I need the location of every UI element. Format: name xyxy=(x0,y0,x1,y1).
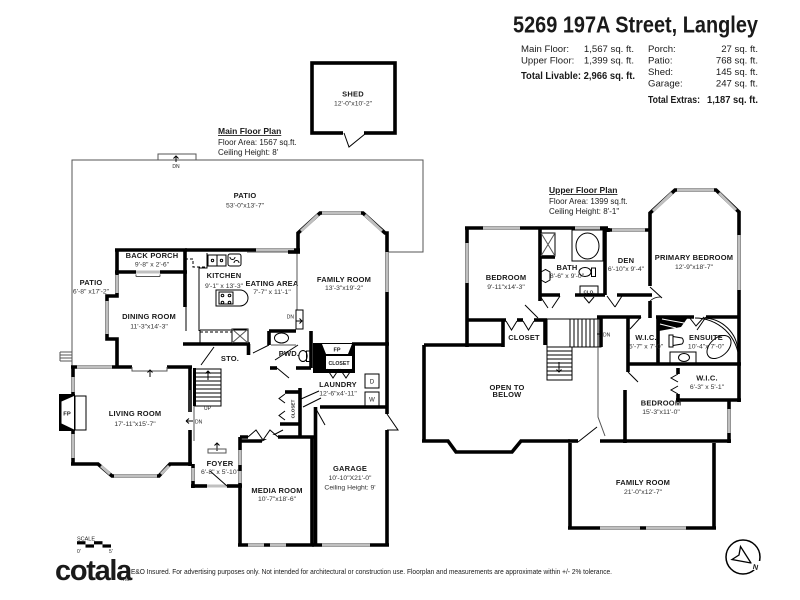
svg-text:DN: DN xyxy=(603,333,611,339)
svg-text:Total Livable: 2,966 sq. ft.: Total Livable: 2,966 sq. ft. xyxy=(521,71,635,82)
svg-text:Total Extras:: Total Extras: xyxy=(648,95,700,106)
svg-text:DN: DN xyxy=(195,420,203,426)
svg-text:DN: DN xyxy=(172,164,180,170)
svg-text:10'-10"X21'-0": 10'-10"X21'-0" xyxy=(329,475,373,482)
svg-text:Upper Floor:: Upper Floor: xyxy=(521,56,574,67)
svg-text:CLOSET: CLOSET xyxy=(328,361,350,367)
svg-text:7'-7" x 11'-1": 7'-7" x 11'-1" xyxy=(253,289,291,296)
svg-text:145 sq. ft.: 145 sq. ft. xyxy=(716,67,758,78)
svg-text:BACK PORCH: BACK PORCH xyxy=(126,251,179,260)
svg-text:PATIO: PATIO xyxy=(80,278,103,287)
svg-text:Garage:: Garage: xyxy=(648,79,683,90)
svg-text:13'-3"x19'-2": 13'-3"x19'-2" xyxy=(325,285,364,292)
svg-text:FP: FP xyxy=(63,412,71,418)
svg-text:9'-1" x 13'-3": 9'-1" x 13'-3" xyxy=(205,283,244,290)
svg-text:27 sq. ft.: 27 sq. ft. xyxy=(721,44,758,55)
svg-text:5269 197A Street, Langley: 5269 197A Street, Langley xyxy=(513,12,758,38)
svg-text:Ceiling Height: 8': Ceiling Height: 8' xyxy=(218,148,279,157)
svg-text:Main Floor Plan: Main Floor Plan xyxy=(218,126,281,136)
svg-text:DEN: DEN xyxy=(618,256,634,265)
svg-text:5'-7" x 7'-0": 5'-7" x 7'-0" xyxy=(629,344,664,351)
svg-text:PATIO: PATIO xyxy=(234,191,257,200)
svg-text:Upper Floor Plan: Upper Floor Plan xyxy=(549,185,617,195)
svg-text:6'-3" x 5'-1": 6'-3" x 5'-1" xyxy=(690,384,725,391)
svg-text:MEDIA ROOM: MEDIA ROOM xyxy=(251,486,302,495)
svg-text:CLOSET: CLOSET xyxy=(291,399,296,418)
svg-text:15'-3"x11'-0": 15'-3"x11'-0" xyxy=(642,409,680,416)
svg-text:6'-8" x 5'-10": 6'-8" x 5'-10" xyxy=(201,469,240,476)
svg-text:Porch:: Porch: xyxy=(648,44,676,55)
svg-text:BEDROOM: BEDROOM xyxy=(486,273,527,282)
svg-text:SHED: SHED xyxy=(342,90,364,99)
svg-text:LIVING ROOM: LIVING ROOM xyxy=(109,409,162,418)
svg-text:BELOW: BELOW xyxy=(493,390,523,399)
svg-text:FAMILY ROOM: FAMILY ROOM xyxy=(317,275,371,284)
svg-text:12'-9"x18'-7": 12'-9"x18'-7" xyxy=(675,264,714,271)
svg-text:TM: TM xyxy=(122,577,129,583)
svg-text:Shed:: Shed: xyxy=(648,67,673,78)
svg-text:KITCHEN: KITCHEN xyxy=(207,271,242,280)
svg-text:W: W xyxy=(369,398,375,404)
svg-text:FOYER: FOYER xyxy=(207,459,234,468)
svg-text:GARAGE: GARAGE xyxy=(333,464,367,473)
svg-text:10'-4"x 7'-0": 10'-4"x 7'-0" xyxy=(688,344,725,351)
svg-text:9'-8" x 2'-6": 9'-8" x 2'-6" xyxy=(135,262,170,269)
svg-text:6'-10"x 9'-4": 6'-10"x 9'-4" xyxy=(608,266,645,273)
svg-text:CLOSET: CLOSET xyxy=(508,333,540,342)
svg-text:FAMILY ROOM: FAMILY ROOM xyxy=(616,478,670,487)
svg-text:53'-0"x13'-7": 53'-0"x13'-7" xyxy=(226,203,265,210)
svg-text:Ceiling Height: 8'-1": Ceiling Height: 8'-1" xyxy=(549,207,619,216)
svg-text:Floor Area: 1399 sq.ft.: Floor Area: 1399 sq.ft. xyxy=(549,197,628,206)
svg-text:PRIMARY BEDROOM: PRIMARY BEDROOM xyxy=(655,253,733,262)
svg-text:21'-0"x12'-7": 21'-0"x12'-7" xyxy=(624,489,663,496)
svg-text:12'-0"x10'-2": 12'-0"x10'-2" xyxy=(334,101,373,108)
svg-text:E&O Insured. For advertising p: E&O Insured. For advertising purposes on… xyxy=(131,567,612,576)
svg-text:1,399 sq. ft.: 1,399 sq. ft. xyxy=(584,56,634,67)
svg-text:6'-8" x17'-2": 6'-8" x17'-2" xyxy=(73,289,110,296)
svg-text:UP: UP xyxy=(204,406,212,412)
svg-text:8'-6" x 9'-0": 8'-6" x 9'-0" xyxy=(550,273,585,280)
svg-text:BEDROOM: BEDROOM xyxy=(641,399,682,408)
svg-text:Floor Area: 1567 sq.ft.: Floor Area: 1567 sq.ft. xyxy=(218,138,297,147)
svg-text:Ceiling Height: 9': Ceiling Height: 9' xyxy=(324,485,375,492)
svg-text:CLO.: CLO. xyxy=(584,290,595,295)
svg-text:17'-11"x15'-7": 17'-11"x15'-7" xyxy=(114,421,156,428)
svg-text:FP: FP xyxy=(333,348,340,354)
svg-text:LAUNDRY: LAUNDRY xyxy=(319,380,357,389)
svg-text:EATING AREA: EATING AREA xyxy=(245,279,298,288)
svg-text:BATH: BATH xyxy=(556,263,577,272)
svg-text:768 sq. ft.: 768 sq. ft. xyxy=(716,56,758,67)
svg-text:W.I.C.: W.I.C. xyxy=(635,333,657,342)
svg-text:W.I.C.: W.I.C. xyxy=(696,374,718,383)
svg-text:STO.: STO. xyxy=(221,354,239,363)
svg-text:12'-6"x4'-11": 12'-6"x4'-11" xyxy=(319,391,357,398)
svg-text:247 sq. ft.: 247 sq. ft. xyxy=(716,79,758,90)
svg-text:9'-11"x14'-3": 9'-11"x14'-3" xyxy=(487,284,525,291)
svg-text:DINING ROOM: DINING ROOM xyxy=(122,312,176,321)
svg-text:10'-7"x18'-6": 10'-7"x18'-6" xyxy=(258,496,297,503)
svg-text:D: D xyxy=(370,380,375,386)
svg-text:Main Floor:: Main Floor: xyxy=(521,44,569,55)
svg-text:1,567 sq. ft.: 1,567 sq. ft. xyxy=(584,44,634,55)
svg-text:Patio:: Patio: xyxy=(648,56,673,67)
svg-text:DN: DN xyxy=(287,315,295,321)
svg-text:1,187 sq. ft.: 1,187 sq. ft. xyxy=(707,95,758,106)
svg-text:11'-3"x14'-3": 11'-3"x14'-3" xyxy=(130,324,168,331)
